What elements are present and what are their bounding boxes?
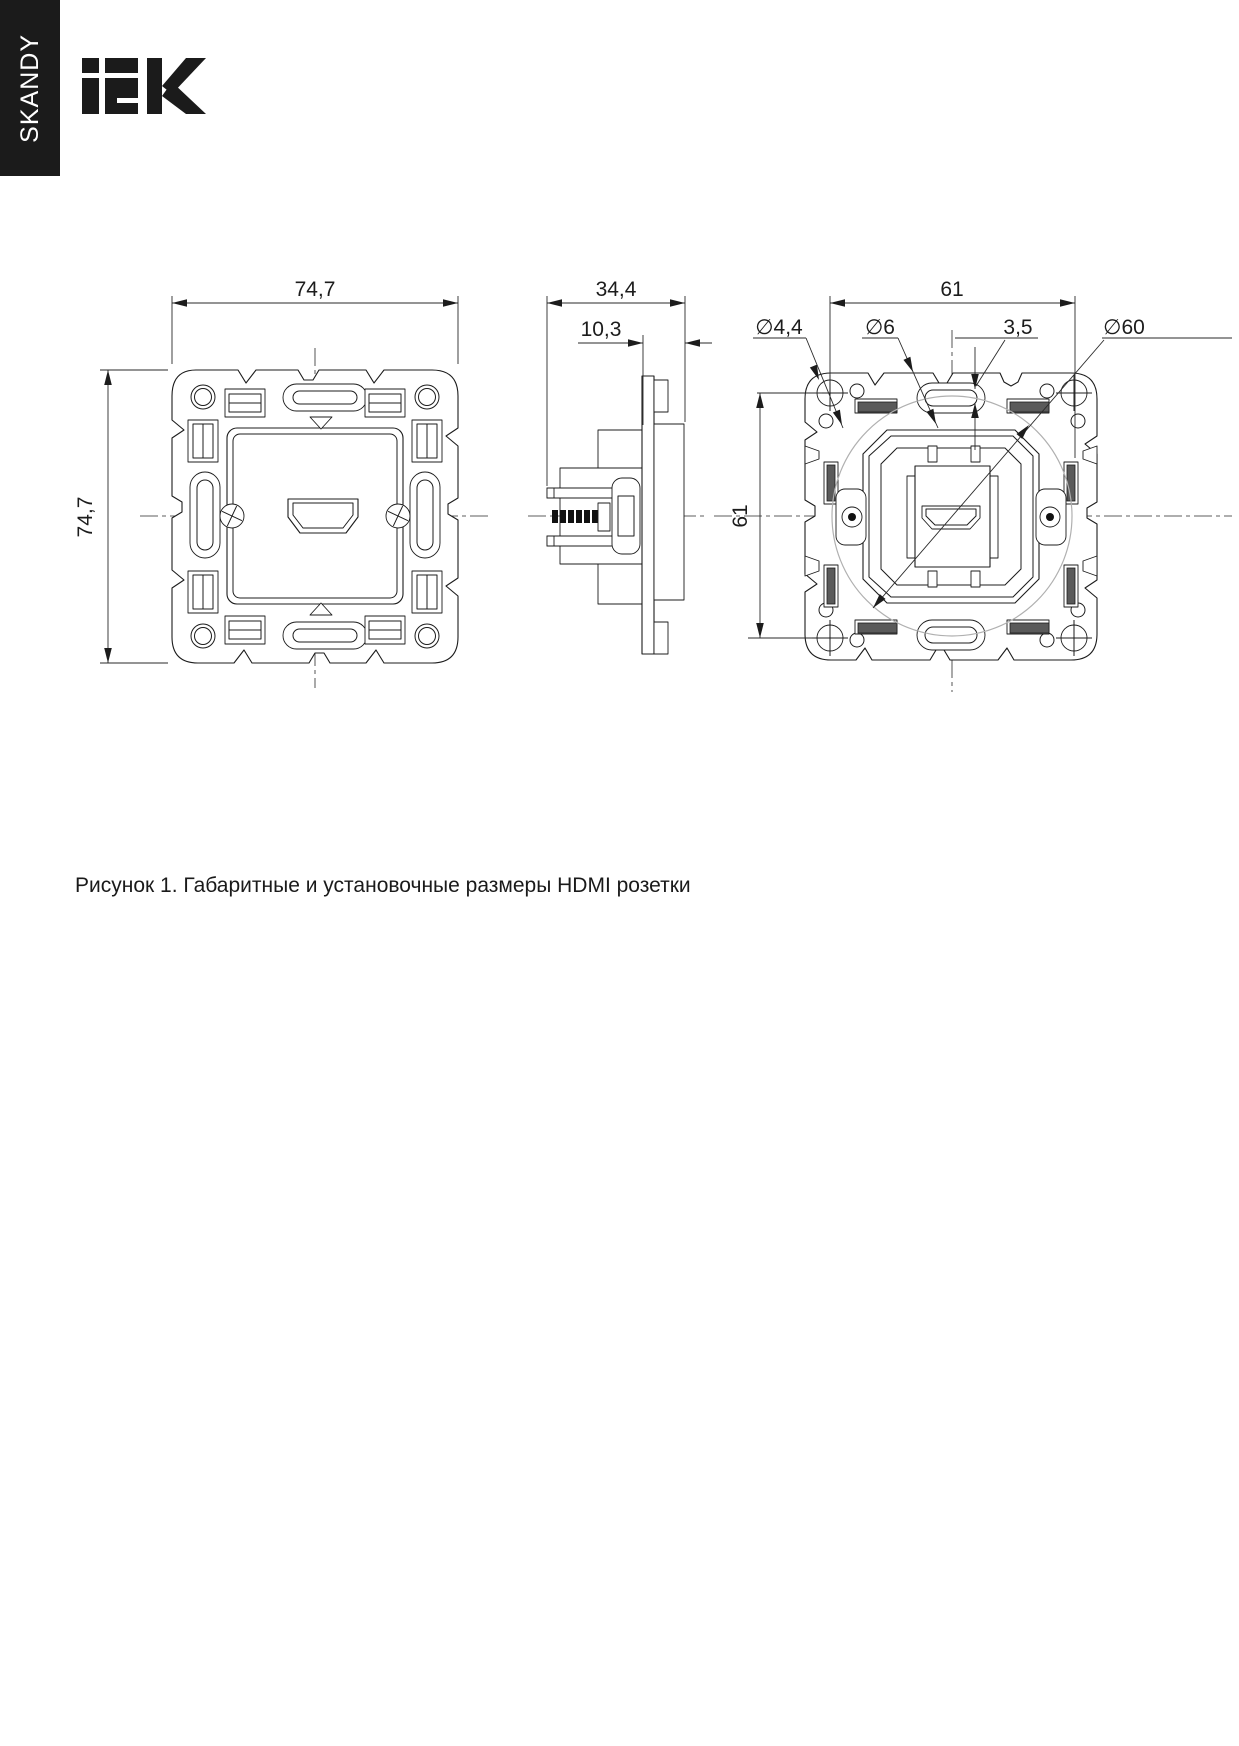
front-height-label: 74,7 — [74, 497, 97, 538]
front-dim-height: 74,7 — [74, 370, 168, 663]
side-depth-label: 34,4 — [596, 278, 637, 301]
back-width-label: 61 — [940, 278, 963, 301]
side-faceplate — [642, 376, 654, 654]
back-view-drawing: 61 61 ∅4,4 ∅6 — [714, 278, 1232, 692]
front-width-label: 74,7 — [295, 278, 336, 301]
back-claw-gap-label: 3,5 — [1003, 316, 1032, 339]
back-hole-label: ∅6 — [865, 316, 895, 339]
back-box-diameter-label: ∅60 — [1103, 316, 1145, 339]
side-view-drawing: 34,4 10,3 — [528, 278, 712, 654]
figure-caption: Рисунок 1. Габаритные и установочные раз… — [75, 874, 691, 898]
dimension-drawing: 74,7 74,7 — [0, 0, 1239, 940]
side-support-frame — [654, 424, 684, 600]
back-height-label: 61 — [729, 504, 752, 527]
back-mechanism-box — [863, 430, 1039, 603]
front-view-drawing: 74,7 74,7 — [74, 278, 492, 688]
back-screw-hole-label: ∅4,4 — [755, 316, 803, 339]
datasheet-page: { "banner": {"label": "SKANDY", "bg": "#… — [0, 0, 1239, 1746]
side-offset-label: 10,3 — [581, 318, 622, 341]
front-hdmi-port — [288, 499, 358, 533]
